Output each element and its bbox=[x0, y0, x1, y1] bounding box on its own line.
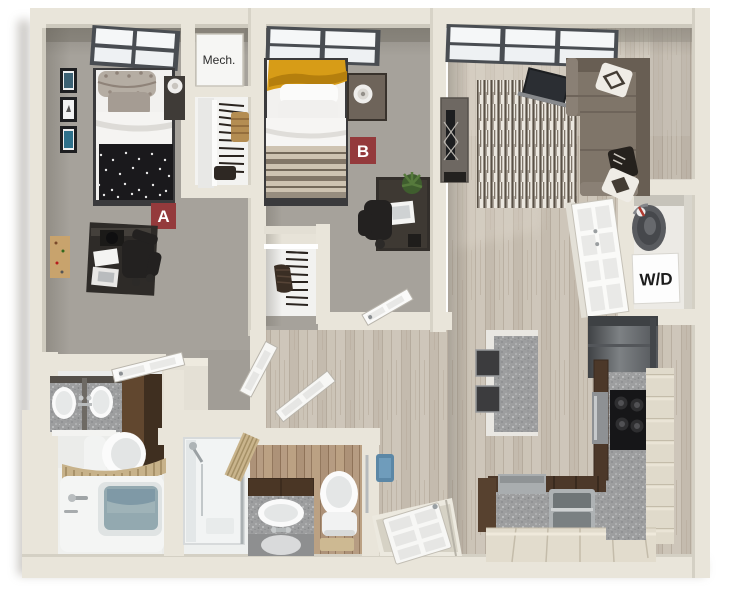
svg-text:A: A bbox=[157, 207, 169, 226]
svg-text:Mech.: Mech. bbox=[203, 53, 236, 67]
svg-text:B: B bbox=[357, 142, 369, 161]
svg-text:W/D: W/D bbox=[639, 269, 673, 289]
